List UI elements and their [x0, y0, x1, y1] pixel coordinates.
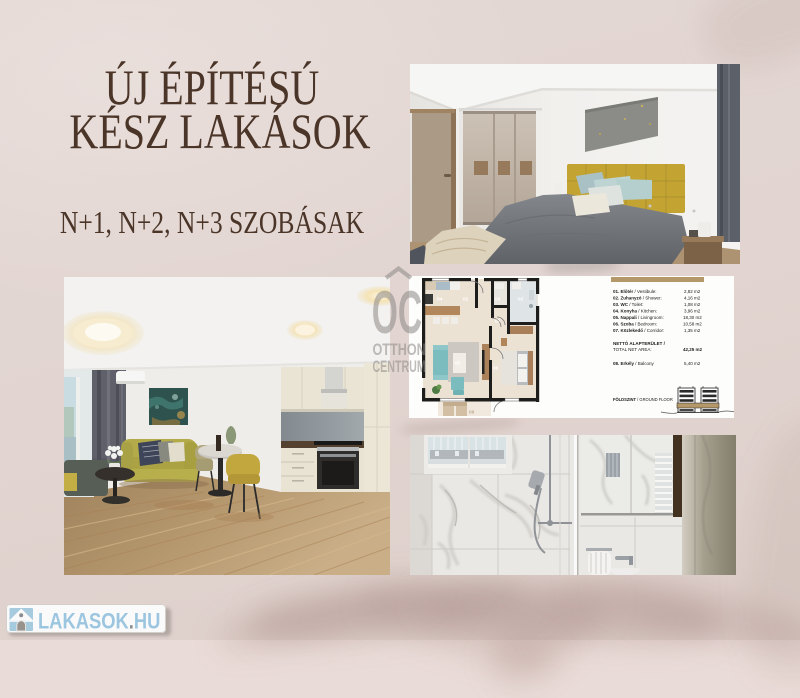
- svg-text:08: 08: [469, 410, 475, 416]
- svg-text:OC: OC: [372, 280, 422, 347]
- svg-text:3,96 m2: 3,96 m2: [684, 309, 701, 314]
- svg-text:CENTRUM: CENTRUM: [372, 358, 425, 375]
- svg-text:1,35 m2: 1,35 m2: [684, 328, 701, 333]
- svg-text:05. Nappali / Livingroom:: 05. Nappali / Livingroom:: [613, 315, 664, 320]
- svg-text:TOTAL NET AREA:: TOTAL NET AREA:: [613, 347, 652, 352]
- svg-text:04. Konyha / Kitchen:: 04. Konyha / Kitchen:: [613, 309, 657, 314]
- svg-text:1,08 m2: 1,08 m2: [684, 302, 701, 307]
- svg-text:01. Előtér / Vestibule:: 01. Előtér / Vestibule:: [613, 289, 657, 294]
- svg-text:42,25 m2: 42,25 m2: [683, 347, 703, 352]
- svg-text:5,40 m2: 5,40 m2: [684, 361, 701, 366]
- svg-text:01: 01: [463, 297, 469, 303]
- svg-text:03. WC / Toilet:: 03. WC / Toilet:: [613, 302, 643, 307]
- svg-text:18,30 m2: 18,30 m2: [683, 315, 702, 320]
- svg-text:10,58 m2: 10,58 m2: [683, 322, 702, 327]
- svg-text:2,82 m2: 2,82 m2: [684, 289, 701, 294]
- svg-text:LAKASOK.HU: LAKASOK.HU: [38, 609, 160, 633]
- svg-text:03: 03: [495, 297, 501, 303]
- svg-text:02: 02: [518, 297, 524, 303]
- svg-text:02. Zuhanyzó / Shower:: 02. Zuhanyzó / Shower:: [613, 296, 662, 301]
- svg-text:08. Erkély / Balcony: 08. Erkély / Balcony: [613, 361, 655, 366]
- svg-text:07. Közlekedő / Corridor:: 07. Közlekedő / Corridor:: [613, 328, 664, 333]
- svg-text:07: 07: [495, 319, 501, 325]
- svg-text:4,16 m2: 4,16 m2: [684, 296, 701, 301]
- svg-text:06: 06: [493, 366, 499, 372]
- svg-text:OTTHON: OTTHON: [372, 341, 425, 359]
- svg-text:06. Szoba / Bedroom:: 06. Szoba / Bedroom:: [613, 322, 657, 327]
- svg-text:05: 05: [455, 361, 461, 367]
- svg-text:FÖLDSZINT / GROUND FLOOR: FÖLDSZINT / GROUND FLOOR: [613, 397, 673, 402]
